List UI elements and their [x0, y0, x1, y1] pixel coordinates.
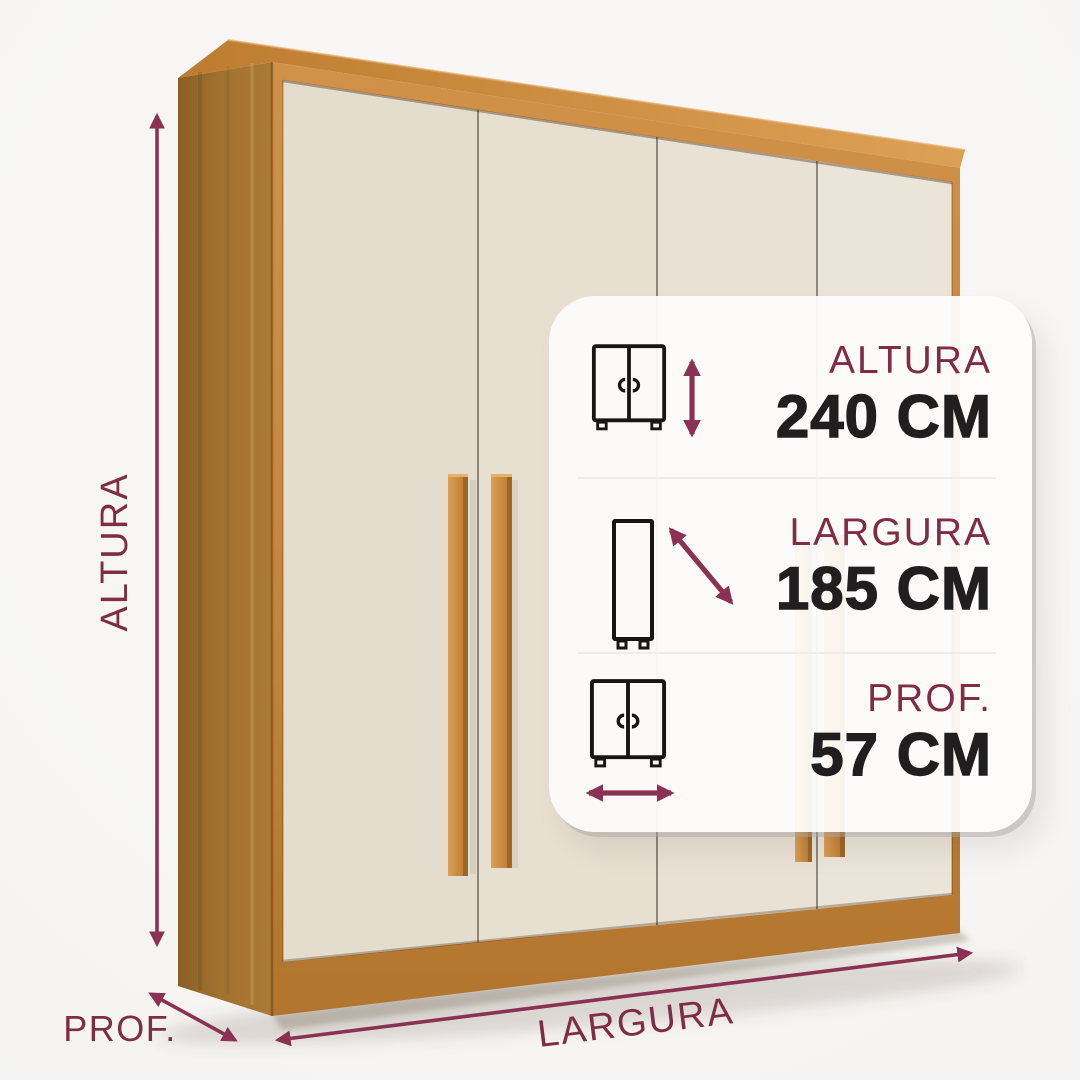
- spec-text-width: LARGURA 185 CM: [776, 512, 992, 619]
- horizontal-double-arrow-icon: [575, 780, 685, 806]
- wardrobe-front-icon: [589, 678, 667, 770]
- cabinet-side-icon: [611, 518, 655, 650]
- vertical-double-arrow-icon: [677, 346, 707, 450]
- width-spec-label: LARGURA: [776, 512, 992, 555]
- dimensions-card: ALTURA 240 CM LARGURA 185 CM: [549, 296, 1032, 832]
- height-spec-label: ALTURA: [776, 340, 992, 383]
- card-divider: [577, 652, 996, 654]
- width-spec-value: 185 CM: [776, 559, 992, 619]
- depth-spec-value: 57 CM: [810, 725, 992, 785]
- diagonal-double-arrow-icon: [655, 514, 747, 618]
- spec-text-height: ALTURA 240 CM: [776, 340, 992, 447]
- height-dimension-label: ALTURA: [94, 442, 138, 662]
- wardrobe-front-icon: [591, 343, 667, 433]
- card-divider: [577, 477, 996, 479]
- depth-spec-label: PROF.: [810, 678, 992, 721]
- height-spec-value: 240 CM: [776, 387, 992, 447]
- spec-text-depth: PROF. 57 CM: [810, 678, 992, 785]
- wardrobe-side-panel: [178, 62, 272, 1016]
- product-dimension-infographic: ALTURA PROF. LARGURA ALTURA 240 CM: [0, 0, 1080, 1080]
- depth-dimension-label: PROF.: [45, 1008, 195, 1050]
